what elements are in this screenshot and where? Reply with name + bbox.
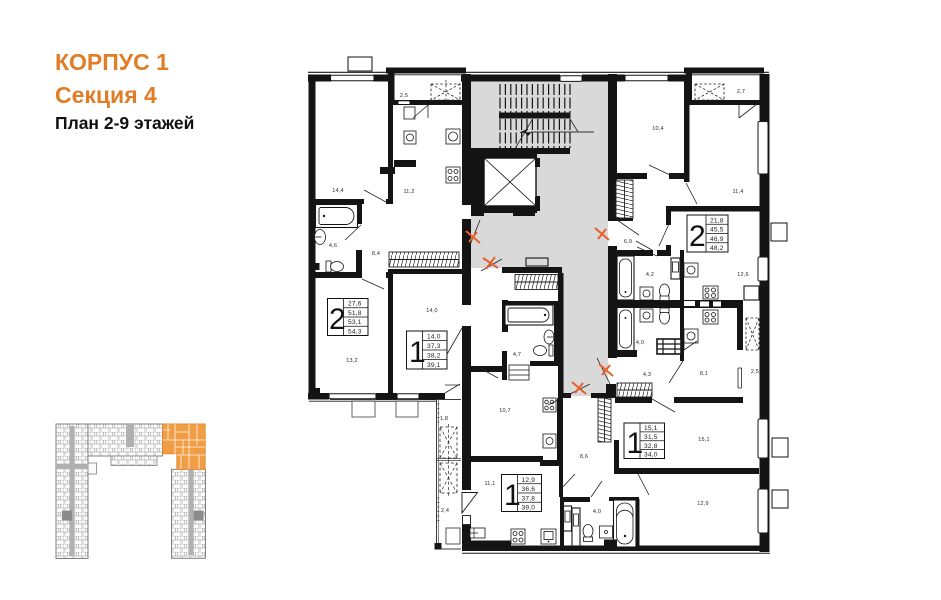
svg-text:37,3: 37,3 bbox=[427, 343, 441, 350]
svg-text:2: 2 bbox=[689, 220, 706, 253]
svg-text:39,1: 39,1 bbox=[427, 362, 441, 369]
svg-text:4,6: 4,6 bbox=[329, 243, 337, 249]
svg-text:53,1: 53,1 bbox=[348, 319, 362, 326]
svg-text:27,6: 27,6 bbox=[348, 301, 362, 308]
svg-text:38,2: 38,2 bbox=[427, 352, 441, 359]
svg-text:4,2: 4,2 bbox=[646, 272, 654, 278]
svg-text:14,4: 14,4 bbox=[332, 188, 344, 194]
svg-text:1: 1 bbox=[504, 479, 521, 512]
svg-text:8,1: 8,1 bbox=[700, 371, 708, 377]
svg-text:10,7: 10,7 bbox=[499, 408, 511, 414]
svg-text:48,2: 48,2 bbox=[710, 245, 724, 252]
svg-text:14,0: 14,0 bbox=[426, 308, 438, 314]
svg-text:12,6: 12,6 bbox=[737, 272, 749, 278]
svg-text:2,7: 2,7 bbox=[737, 89, 745, 95]
svg-text:6,9: 6,9 bbox=[624, 239, 632, 245]
svg-text:51,8: 51,8 bbox=[348, 310, 362, 317]
svg-text:4,0: 4,0 bbox=[636, 340, 644, 346]
svg-text:13,2: 13,2 bbox=[346, 358, 358, 364]
svg-text:4,0: 4,0 bbox=[593, 509, 601, 515]
svg-text:2: 2 bbox=[329, 303, 346, 336]
svg-text:12,9: 12,9 bbox=[522, 477, 536, 484]
svg-text:4,7: 4,7 bbox=[513, 352, 521, 358]
svg-text:34,0: 34,0 bbox=[644, 452, 658, 459]
svg-text:1: 1 bbox=[627, 427, 644, 460]
svg-text:4,3: 4,3 bbox=[643, 372, 651, 378]
svg-text:36,6: 36,6 bbox=[522, 486, 536, 493]
svg-text:2,5: 2,5 bbox=[751, 369, 759, 375]
svg-text:Секция 4: Секция 4 bbox=[55, 82, 157, 108]
svg-text:11,4: 11,4 bbox=[732, 189, 743, 195]
svg-text:39,0: 39,0 bbox=[522, 505, 536, 512]
svg-text:11,2: 11,2 bbox=[403, 189, 414, 195]
svg-text:21,8: 21,8 bbox=[710, 217, 724, 224]
svg-text:37,8: 37,8 bbox=[522, 495, 536, 502]
svg-text:2,4: 2,4 bbox=[441, 508, 449, 514]
svg-text:8,4: 8,4 bbox=[372, 251, 380, 257]
svg-text:31,5: 31,5 bbox=[644, 434, 658, 441]
svg-text:2,5: 2,5 bbox=[400, 93, 408, 99]
svg-text:КОРПУС 1: КОРПУС 1 bbox=[55, 49, 169, 75]
svg-text:План 2-9 этажей: План 2-9 этажей bbox=[55, 113, 194, 133]
svg-text:10,4: 10,4 bbox=[652, 126, 664, 132]
svg-text:14,0: 14,0 bbox=[427, 333, 441, 340]
svg-text:54,3: 54,3 bbox=[348, 328, 362, 335]
svg-text:11,1: 11,1 bbox=[484, 481, 495, 487]
svg-text:46,9: 46,9 bbox=[710, 236, 724, 243]
svg-text:1,8: 1,8 bbox=[440, 416, 448, 422]
svg-text:1: 1 bbox=[409, 336, 426, 369]
svg-text:32,8: 32,8 bbox=[644, 443, 658, 450]
svg-text:15,1: 15,1 bbox=[644, 425, 658, 432]
svg-text:45,5: 45,5 bbox=[710, 227, 724, 234]
svg-text:12,9: 12,9 bbox=[697, 501, 709, 507]
svg-text:15,1: 15,1 bbox=[698, 437, 710, 443]
svg-text:8,6: 8,6 bbox=[580, 454, 588, 460]
